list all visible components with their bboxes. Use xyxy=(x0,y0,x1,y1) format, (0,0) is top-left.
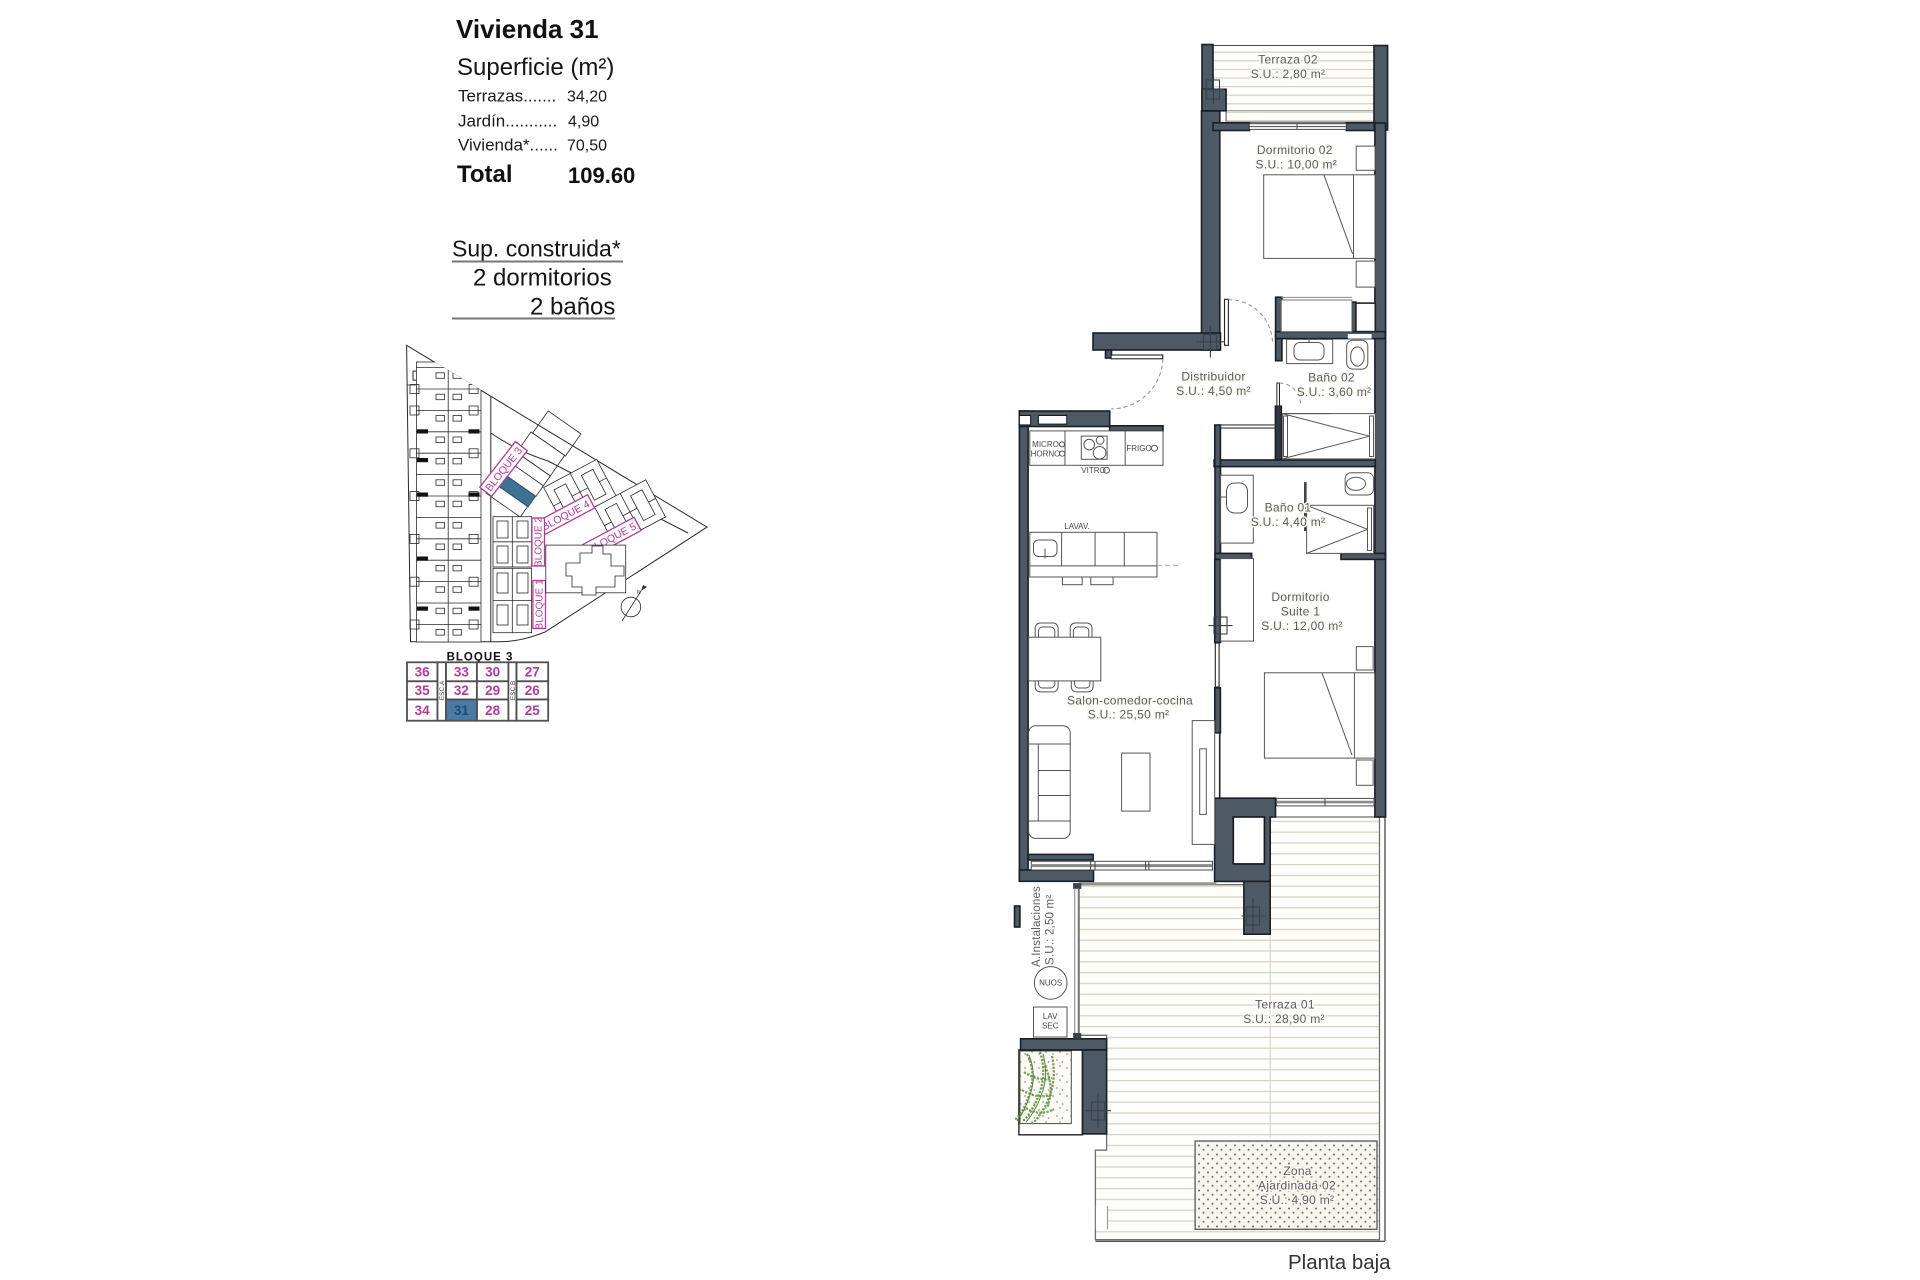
svg-text:S.U.: 12,00 m²: S.U.: 12,00 m² xyxy=(1261,619,1343,633)
svg-text:NUOS: NUOS xyxy=(1039,979,1062,988)
svg-text:Vivienda 31: Vivienda 31 xyxy=(456,14,599,44)
svg-text:Dormitorio: Dormitorio xyxy=(1271,590,1329,604)
svg-text:Total: Total xyxy=(457,161,513,188)
svg-text:S.U.: 4,40 m²: S.U.: 4,40 m² xyxy=(1251,515,1326,529)
svg-text:35: 35 xyxy=(415,683,431,698)
svg-text:27: 27 xyxy=(525,665,540,680)
svg-text:Ajardinada 02: Ajardinada 02 xyxy=(1258,1179,1336,1193)
svg-text:LAVAV.: LAVAV. xyxy=(1064,522,1090,531)
svg-text:Superficie (m²): Superficie (m²) xyxy=(457,54,614,81)
svg-text:30: 30 xyxy=(485,665,500,680)
svg-text:S.U.: 4,90 m²: S.U.: 4,90 m² xyxy=(1260,1193,1335,1207)
svg-text:Vivienda*......: Vivienda*...... xyxy=(458,136,558,155)
svg-text:33: 33 xyxy=(454,665,470,680)
svg-text:S.U.: 28,90 m²: S.U.: 28,90 m² xyxy=(1243,1012,1325,1026)
svg-text:VITRO: VITRO xyxy=(1081,466,1105,475)
svg-text:Planta baja: Planta baja xyxy=(1288,1251,1391,1274)
svg-text:N: N xyxy=(637,590,641,596)
svg-text:S.U.: 10,00 m²: S.U.: 10,00 m² xyxy=(1256,158,1338,172)
svg-text:109.60: 109.60 xyxy=(568,163,635,188)
svg-text:Zona: Zona xyxy=(1283,1164,1312,1178)
svg-text:BLOQUE 1: BLOQUE 1 xyxy=(535,579,546,629)
svg-text:SEC: SEC xyxy=(1042,1022,1059,1031)
svg-text:Terraza 02: Terraza 02 xyxy=(1258,53,1318,67)
svg-text:BLOQUE 2: BLOQUE 2 xyxy=(534,517,545,567)
svg-text:29: 29 xyxy=(485,683,500,698)
svg-text:28: 28 xyxy=(485,703,501,718)
svg-text:ESC.A: ESC.A xyxy=(439,680,446,700)
svg-text:Baño 02: Baño 02 xyxy=(1308,371,1355,385)
svg-text:31: 31 xyxy=(454,703,470,718)
svg-text:Baño 01: Baño 01 xyxy=(1265,501,1312,515)
svg-text:S.U.: 2,50 m²: S.U.: 2,50 m² xyxy=(1045,895,1057,965)
svg-text:32: 32 xyxy=(454,683,469,698)
svg-text:S.U.: 25,50 m²: S.U.: 25,50 m² xyxy=(1088,708,1170,722)
svg-text:70,50: 70,50 xyxy=(567,138,607,155)
svg-text:FRIGO: FRIGO xyxy=(1126,444,1151,453)
svg-text:S.U.: 3,60 m²: S.U.: 3,60 m² xyxy=(1297,385,1372,399)
svg-text:MICRO: MICRO xyxy=(1032,440,1059,449)
svg-text:Salon-comedor-cocina: Salon-comedor-cocina xyxy=(1067,694,1193,708)
svg-text:2 baños: 2 baños xyxy=(530,294,615,321)
svg-text:Terrazas.......: Terrazas....... xyxy=(458,87,556,106)
svg-text:S.U.: 2,80 m²: S.U.: 2,80 m² xyxy=(1251,67,1326,81)
svg-text:A.Instalaciones: A.Instalaciones xyxy=(1031,886,1043,967)
svg-text:4,90: 4,90 xyxy=(568,114,599,131)
svg-text:S.U.: 4,50 m²: S.U.: 4,50 m² xyxy=(1176,384,1251,398)
svg-text:Suite 1: Suite 1 xyxy=(1281,605,1320,619)
svg-text:Dormitorio 02: Dormitorio 02 xyxy=(1257,143,1333,157)
svg-text:34: 34 xyxy=(415,703,431,718)
svg-text:Terraza 01: Terraza 01 xyxy=(1255,998,1315,1012)
svg-text:ESC.B: ESC.B xyxy=(510,681,517,701)
svg-text:25: 25 xyxy=(525,703,541,718)
svg-text:2 dormitorios: 2 dormitorios xyxy=(473,265,612,292)
svg-text:26: 26 xyxy=(525,683,541,698)
svg-text:34,20: 34,20 xyxy=(567,89,607,106)
svg-text:Jardín...........: Jardín........... xyxy=(458,112,557,131)
svg-text:Distribuidor: Distribuidor xyxy=(1181,370,1245,384)
svg-text:HORNO: HORNO xyxy=(1031,450,1061,459)
svg-text:Sup. construida*: Sup. construida* xyxy=(452,236,621,262)
svg-text:LAV: LAV xyxy=(1043,1012,1058,1021)
svg-text:36: 36 xyxy=(415,665,431,680)
